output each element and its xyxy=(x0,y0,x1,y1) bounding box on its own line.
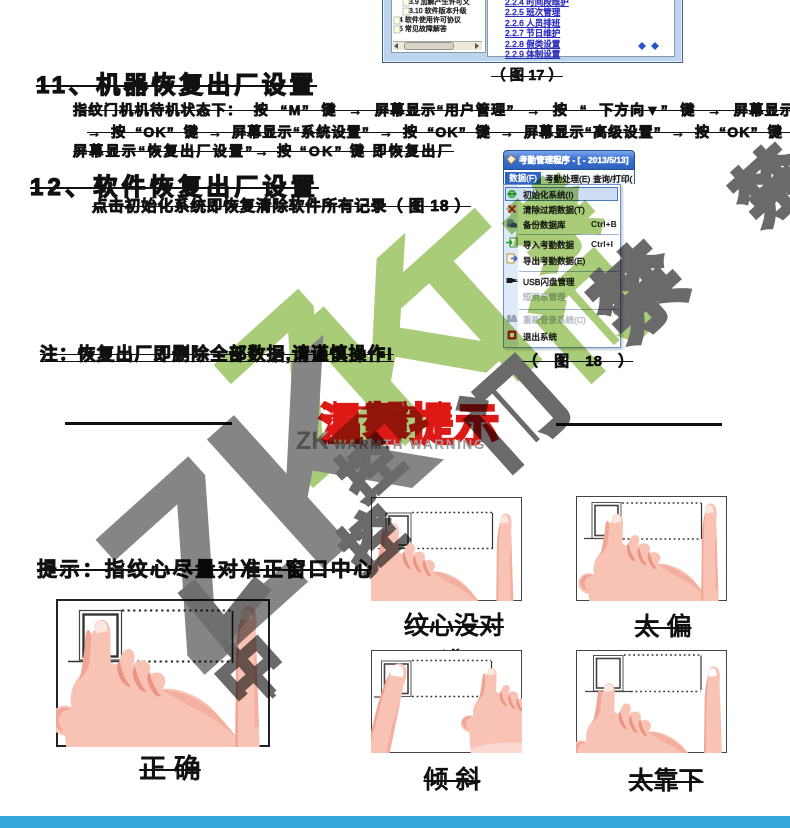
svg-text:禁: 禁 xyxy=(719,134,790,239)
svg-text:Z: Z xyxy=(169,244,445,529)
